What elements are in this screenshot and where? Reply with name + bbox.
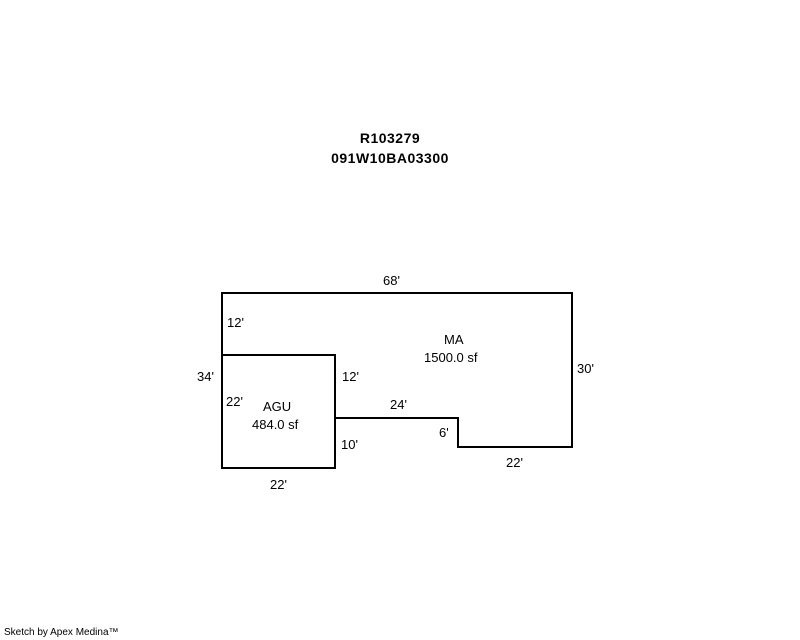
area-code-agu: AGU [263, 400, 291, 413]
area-size-agu: 484.0 sf [252, 418, 298, 431]
dim-left-total-34: 34' [197, 370, 214, 383]
sketch-credit: Sketch by Apex Medina™ [4, 627, 119, 638]
dim-bottom-right-22: 22' [506, 456, 523, 469]
dim-notch-step-6: 6' [439, 426, 449, 439]
building-outline-ma [222, 293, 572, 468]
dim-left-upper-12: 12' [227, 316, 244, 329]
dim-right-30: 30' [577, 362, 594, 375]
dim-top-68: 68' [383, 274, 400, 287]
footprint-sketch [0, 0, 800, 640]
dim-agu-right-upper-12: 12' [342, 370, 359, 383]
dim-agu-left-22: 22' [226, 395, 243, 408]
dim-notch-top-24: 24' [390, 398, 407, 411]
area-size-ma: 1500.0 sf [424, 351, 478, 364]
area-code-ma: MA [444, 333, 464, 346]
dim-agu-right-lower-10: 10' [341, 438, 358, 451]
property-sketch-page: R103279 091W10BA03300 68' 12' MA 1500.0 … [0, 0, 800, 640]
dim-agu-bottom-22: 22' [270, 478, 287, 491]
